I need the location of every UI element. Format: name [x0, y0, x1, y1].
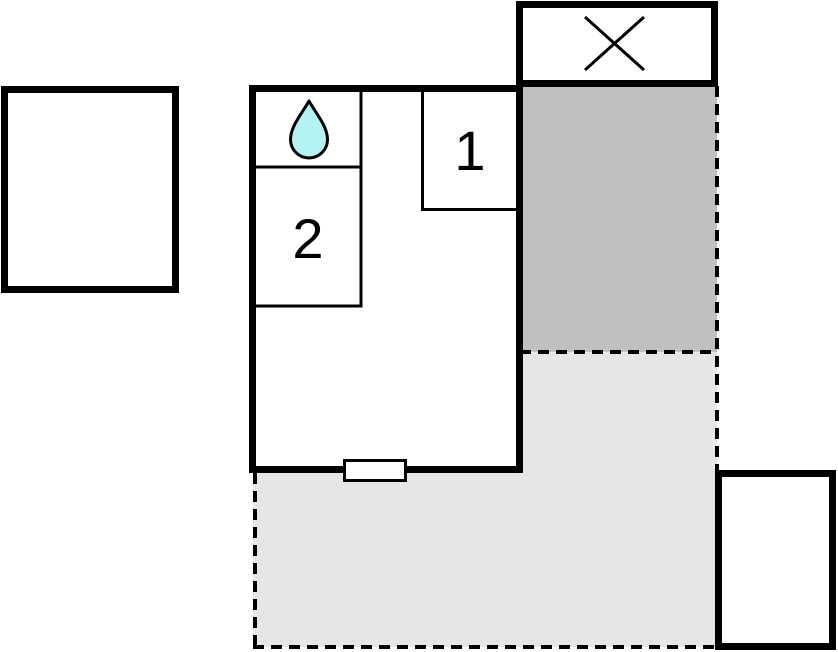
annex-box-bottom-right — [719, 474, 833, 647]
room-1-label: 1 — [424, 94, 516, 208]
annex-box-left — [5, 90, 176, 290]
floor-plan: 1 2 — [0, 0, 838, 652]
floor-plan-canvas — [0, 0, 838, 652]
door-marker — [345, 461, 406, 481]
covered-terrace-area — [520, 86, 717, 352]
room-2-label: 2 — [256, 172, 360, 306]
